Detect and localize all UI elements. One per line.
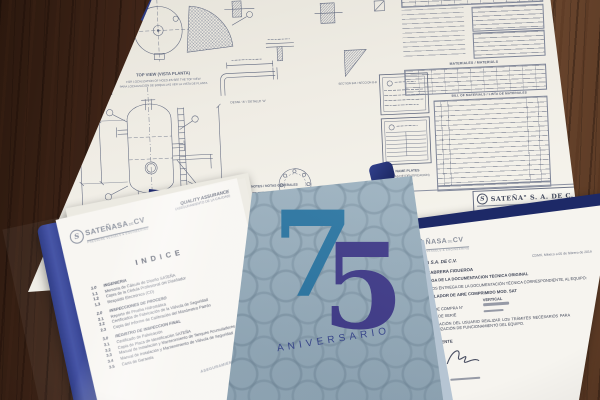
- date-line: CDMX, México a 05 de febrero de 2019: [532, 250, 592, 258]
- wood-desk-background: TOP VIEW (VISTA PLANTA) FOR LOCALIZATION…: [0, 0, 600, 400]
- field-value-blur: [484, 309, 504, 313]
- field-value-blur: [483, 302, 509, 306]
- closing-line: ATENTAMENTE: [422, 328, 598, 345]
- brand-cv: CV: [453, 237, 464, 245]
- signature-scribble: [444, 345, 485, 370]
- brand-cv: CV: [133, 215, 146, 226]
- field-value: VERTICAL: [483, 296, 503, 302]
- company-logo-swirl-icon: S: [68, 228, 85, 245]
- brand-tagline: VESSELS & ENGINEERING: [426, 246, 469, 253]
- brand-name: ÑASA: [425, 238, 447, 246]
